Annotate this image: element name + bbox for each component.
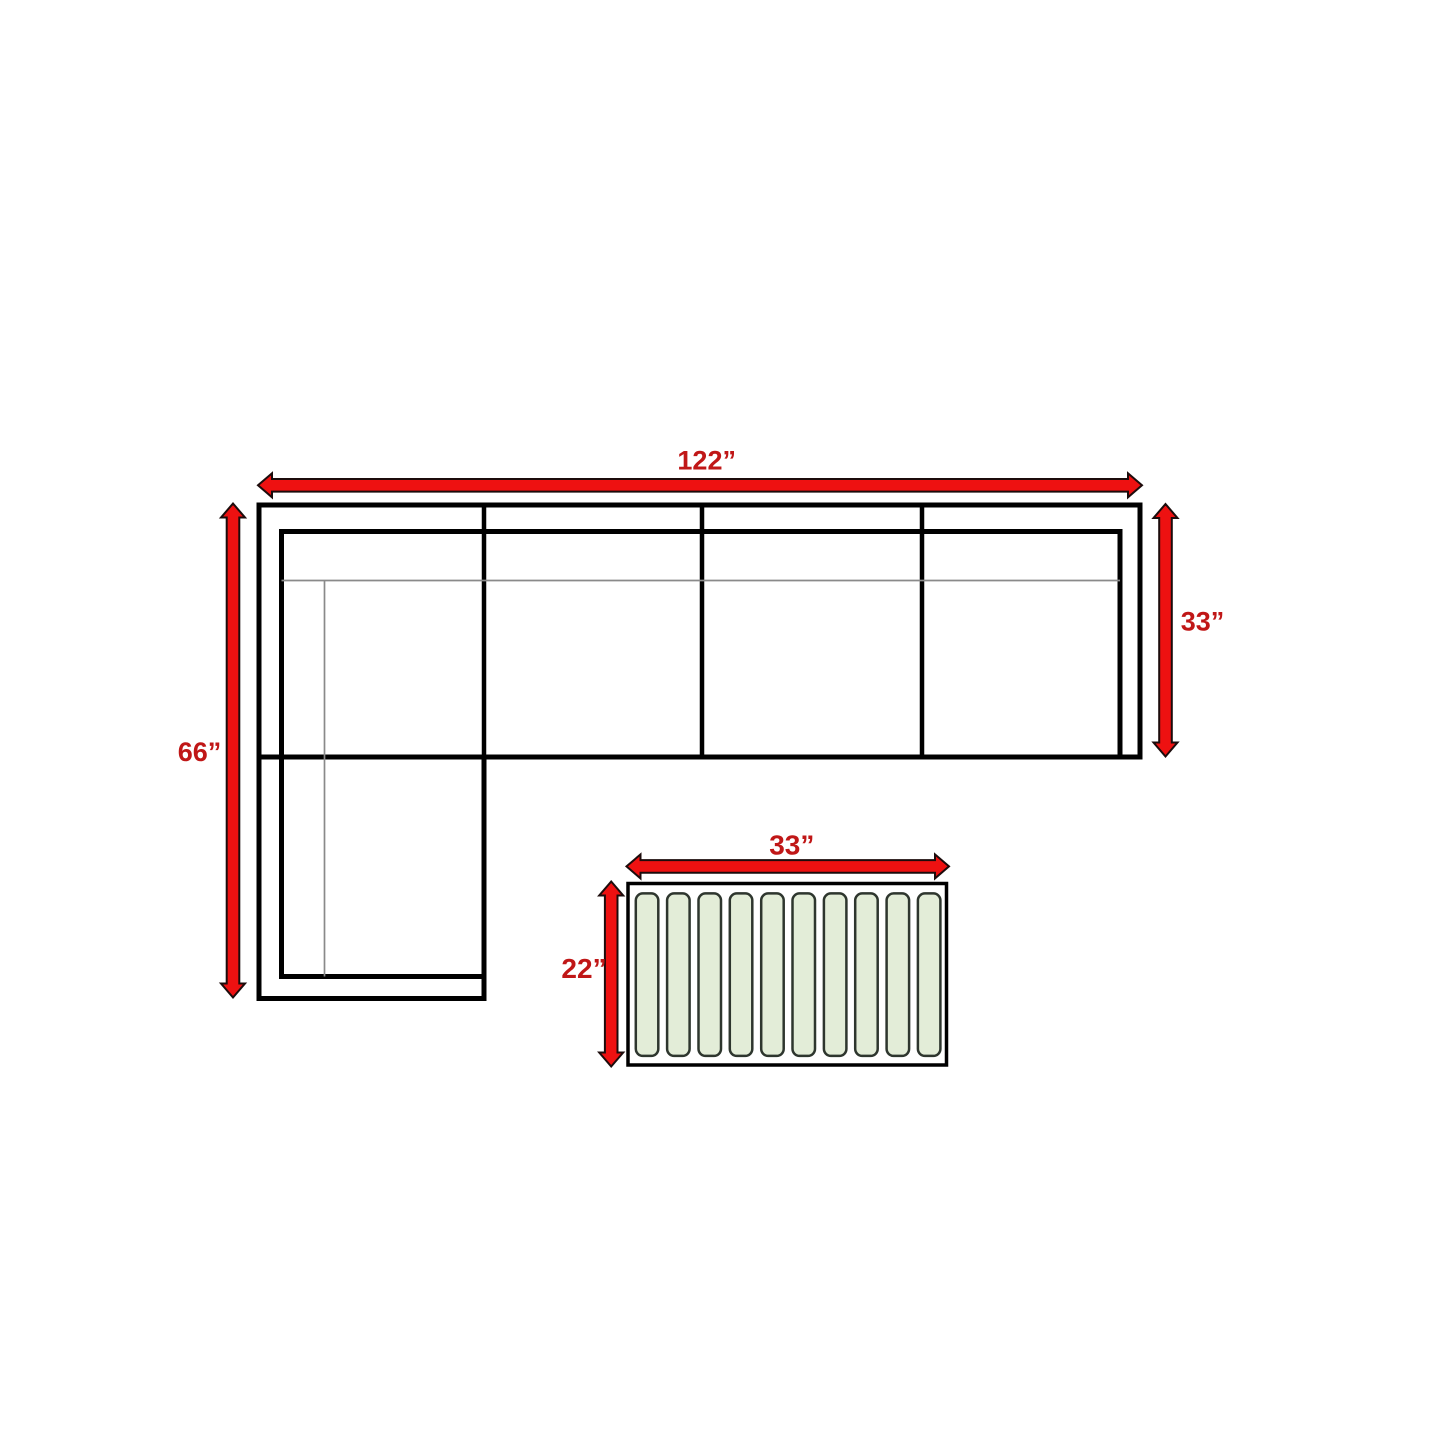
svg-text:22”: 22” xyxy=(561,953,606,984)
svg-text:33”: 33” xyxy=(769,830,814,861)
svg-text:122”: 122” xyxy=(677,446,736,476)
svg-text:33”: 33” xyxy=(1181,607,1225,637)
svg-text:66”: 66” xyxy=(178,737,222,767)
